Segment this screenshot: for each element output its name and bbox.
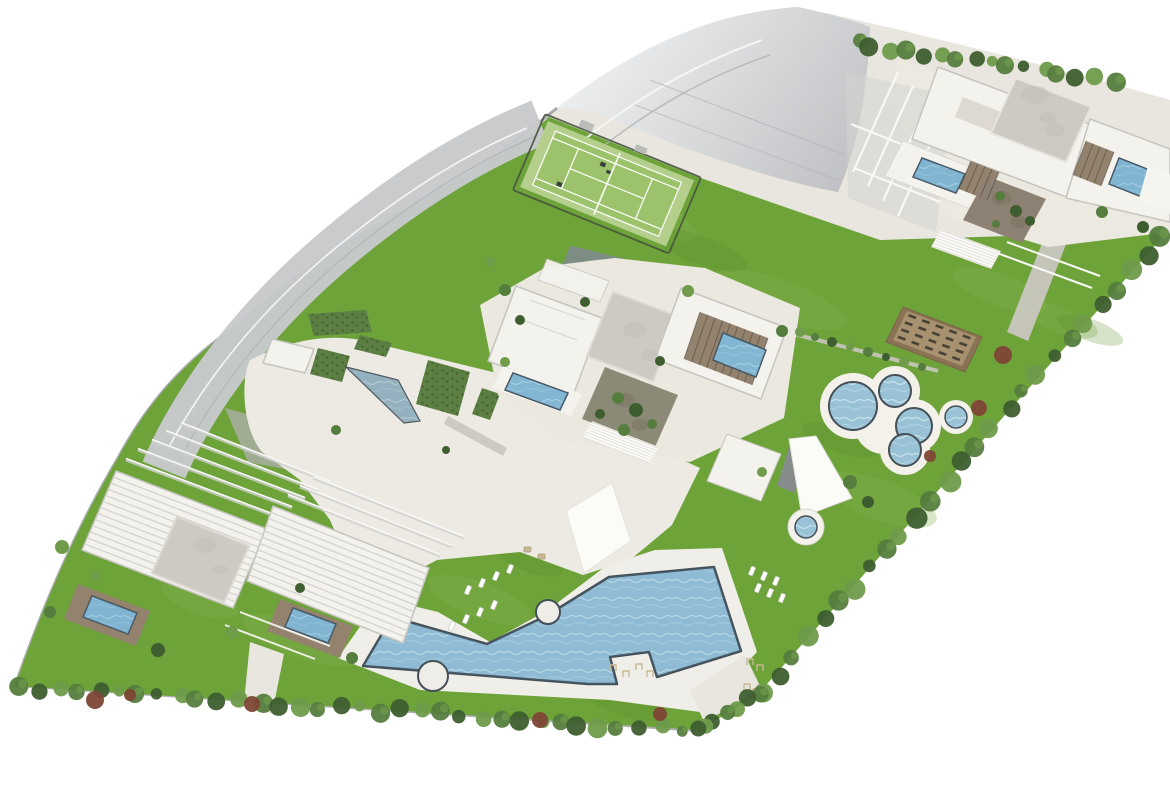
red-tree-canopy bbox=[994, 346, 1012, 364]
roof-stain bbox=[193, 537, 217, 553]
tree-canopy bbox=[1048, 349, 1061, 362]
shrub bbox=[346, 652, 358, 664]
tree-canopy bbox=[863, 560, 876, 573]
tree-canopy bbox=[291, 698, 310, 717]
tree-canopy bbox=[1121, 259, 1142, 280]
shrub bbox=[499, 284, 511, 296]
tree-canopy bbox=[798, 626, 819, 647]
tree-canopy bbox=[452, 710, 465, 723]
red-tree-canopy bbox=[971, 400, 987, 416]
tree-canopy bbox=[1095, 296, 1112, 313]
tree-canopy bbox=[940, 471, 961, 492]
kids-pool bbox=[945, 406, 967, 428]
shrub bbox=[827, 337, 837, 347]
tree-highlight bbox=[682, 727, 687, 732]
tree-highlight bbox=[76, 686, 83, 693]
tree-highlight bbox=[1116, 75, 1125, 84]
tree-canopy bbox=[1003, 400, 1020, 417]
tree-highlight bbox=[905, 43, 914, 52]
tree-highlight bbox=[1004, 58, 1012, 66]
roof-stain bbox=[623, 322, 647, 338]
tree-canopy bbox=[269, 697, 288, 716]
garden-table bbox=[538, 554, 545, 559]
tree-highlight bbox=[502, 713, 510, 721]
shrub bbox=[1137, 221, 1149, 233]
roof-stain bbox=[212, 565, 228, 575]
shrub bbox=[295, 583, 305, 593]
red-tree-canopy bbox=[244, 696, 260, 712]
tree-highlight bbox=[791, 652, 798, 659]
tree-highlight bbox=[18, 679, 27, 688]
tree-highlight bbox=[194, 692, 202, 700]
tree-highlight bbox=[1159, 228, 1168, 237]
courtyard-tree bbox=[612, 392, 624, 404]
tree-canopy bbox=[1139, 246, 1158, 265]
shrub bbox=[899, 357, 909, 367]
shrub bbox=[843, 475, 857, 489]
tree-canopy bbox=[333, 697, 350, 714]
hedge-bed bbox=[308, 310, 372, 336]
pool-island-steps bbox=[418, 661, 448, 691]
tree-highlight bbox=[955, 53, 962, 60]
shrub bbox=[846, 343, 854, 351]
tree-canopy bbox=[1086, 68, 1104, 86]
roof-stain bbox=[1045, 123, 1065, 137]
shrub bbox=[655, 356, 665, 366]
shrub bbox=[515, 315, 525, 325]
tree-canopy bbox=[1018, 61, 1029, 72]
shrub bbox=[331, 425, 341, 435]
tree-canopy bbox=[772, 668, 790, 686]
tree-canopy bbox=[978, 419, 997, 438]
shrub bbox=[580, 297, 590, 307]
tree-highlight bbox=[615, 723, 622, 730]
tree-canopy bbox=[151, 688, 162, 699]
shrub bbox=[226, 626, 238, 638]
tree-canopy bbox=[207, 693, 225, 711]
red-tree-canopy bbox=[86, 691, 104, 709]
tree-canopy bbox=[1066, 69, 1084, 87]
tree-highlight bbox=[727, 707, 734, 714]
shrub bbox=[91, 571, 101, 581]
tree-highlight bbox=[930, 494, 939, 503]
tree-canopy bbox=[969, 51, 985, 67]
garden-table bbox=[524, 547, 531, 552]
courtyard-tree bbox=[1025, 216, 1035, 226]
courtyard-tree bbox=[629, 403, 643, 417]
shrub bbox=[757, 467, 767, 477]
tree-highlight bbox=[886, 542, 895, 551]
tree-highlight bbox=[317, 704, 324, 711]
tree-canopy bbox=[114, 686, 125, 697]
red-tree-canopy bbox=[532, 712, 548, 728]
red-tree-canopy bbox=[924, 450, 936, 462]
shrub bbox=[862, 496, 874, 508]
courtyard-stain bbox=[632, 419, 648, 431]
tree-canopy bbox=[859, 37, 878, 56]
tree-highlight bbox=[560, 716, 567, 723]
tree-canopy bbox=[510, 711, 529, 730]
tree-highlight bbox=[1021, 386, 1027, 392]
courtyard-stain bbox=[1010, 216, 1026, 228]
shrub bbox=[151, 643, 165, 657]
tree-canopy bbox=[31, 684, 47, 700]
tree-canopy bbox=[54, 681, 69, 696]
shrub bbox=[863, 347, 873, 357]
tree-canopy bbox=[588, 719, 608, 739]
shrub bbox=[811, 333, 819, 341]
shrub bbox=[918, 363, 926, 371]
round-spa bbox=[795, 516, 817, 538]
round-pool bbox=[829, 382, 877, 430]
round-pool bbox=[879, 375, 911, 407]
tree-highlight bbox=[1116, 284, 1124, 292]
pool-island-steps bbox=[536, 600, 560, 624]
courtyard-tree bbox=[995, 191, 1005, 201]
tree-highlight bbox=[838, 593, 847, 602]
tree-canopy bbox=[1074, 315, 1092, 333]
tree-highlight bbox=[380, 706, 389, 715]
shrub bbox=[55, 540, 69, 554]
tree-canopy bbox=[354, 701, 365, 712]
tree-canopy bbox=[1025, 365, 1045, 385]
roof-stain bbox=[1039, 112, 1057, 124]
shrub bbox=[44, 606, 56, 618]
masterplan-stage bbox=[0, 0, 1170, 785]
tree-highlight bbox=[974, 440, 983, 449]
shrub bbox=[500, 357, 510, 367]
tree-canopy bbox=[631, 720, 646, 735]
shrub bbox=[1096, 206, 1108, 218]
round-pool bbox=[889, 434, 921, 466]
shrub bbox=[882, 353, 890, 361]
red-tree-canopy bbox=[124, 689, 136, 701]
courtyard-tree bbox=[1010, 205, 1022, 217]
courtyard-tree bbox=[992, 220, 1000, 228]
tree-canopy bbox=[817, 610, 834, 627]
tree-highlight bbox=[1055, 67, 1063, 75]
shrub bbox=[776, 325, 788, 337]
tree-canopy bbox=[916, 48, 932, 64]
tree-canopy bbox=[476, 711, 492, 727]
site-plan-svg bbox=[0, 0, 1170, 785]
courtyard-tree bbox=[595, 409, 605, 419]
roof-stain bbox=[1021, 86, 1049, 104]
shrub bbox=[795, 327, 805, 337]
tree-highlight bbox=[440, 704, 449, 713]
tree-highlight bbox=[760, 688, 767, 695]
tree-canopy bbox=[391, 699, 409, 717]
red-tree-canopy bbox=[653, 707, 667, 721]
courtyard-tree bbox=[618, 424, 630, 436]
tree-canopy bbox=[906, 507, 927, 528]
shrub bbox=[485, 257, 495, 267]
tree-canopy bbox=[952, 451, 972, 471]
tree-canopy bbox=[415, 703, 430, 718]
tree-canopy bbox=[566, 716, 586, 736]
tree-canopy bbox=[690, 720, 706, 736]
shrub bbox=[442, 446, 450, 454]
courtyard-tree bbox=[647, 419, 657, 429]
shrub bbox=[682, 285, 694, 297]
tree-highlight bbox=[1072, 332, 1080, 340]
